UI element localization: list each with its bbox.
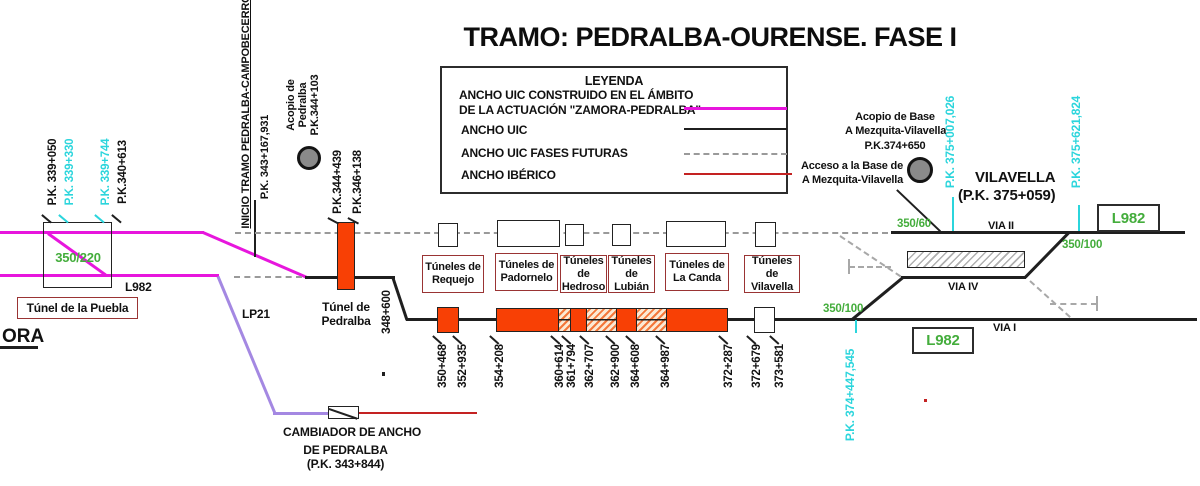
acopio-pedralba-label: Acopio de Pedralba P.K.344+103 — [285, 75, 321, 136]
acopio-base-label-line1: Acopio de Base — [845, 111, 945, 123]
speed-label-350-100-right: 350/100 — [1062, 239, 1102, 251]
pk-label-339-744: P.K. 339+744 — [100, 139, 112, 206]
station-name: VILAVELLA — [975, 169, 1055, 186]
via-iv-label: VIA IV — [948, 281, 978, 293]
future-tunnel-la-canda — [666, 221, 726, 247]
future-siding-buffer-right — [1096, 296, 1098, 311]
pk-tick-364-987: 364+987 — [660, 344, 672, 388]
tunnel-group-requejo: Túneles de Requejo — [422, 255, 484, 293]
acopio-pedralba-marker — [297, 146, 321, 170]
tunnel-bar-padornelo-lacanda — [496, 308, 728, 332]
pk-tick-362-707: 362+707 — [584, 344, 596, 388]
acopio-base-label-line3: P.K.374+650 — [845, 140, 945, 152]
tunnel-group-lubian: Túneles de Lubián — [608, 255, 655, 293]
tunnel-group-label: Vilavella — [751, 281, 793, 294]
speed-label-350-220: 350/220 — [48, 250, 108, 265]
inicio-tramo-label: INICIO TRAMO PEDRALBA-CAMPOBECERROS — [240, 0, 252, 229]
via-ii-label: VIA II — [988, 220, 1014, 232]
future-tunnel-vilavella — [755, 222, 776, 247]
line-code-l982-top-box: L982 — [1097, 204, 1160, 232]
future-tunnel-hedroso — [565, 224, 584, 246]
open-section-hatch — [558, 309, 571, 331]
tunel-pedralba-rect — [337, 222, 355, 290]
pk-label-339-050: P.K. 339+050 — [47, 139, 59, 206]
line-code-l982-left: L982 — [125, 280, 152, 294]
pk-label-344-439: P.K.344+439 — [332, 150, 344, 214]
legend-item-iberico: ANCHO IBÉRICO — [461, 168, 556, 182]
pk-label-339-330: P.K. 339+330 — [64, 139, 76, 206]
iberico-branch-horizontal — [273, 412, 330, 415]
speed-label-350-100-left: 350/100 — [823, 303, 863, 315]
acceso-base-label-line1: Acceso a la Base de — [795, 160, 903, 172]
tunnel-group-label: Hedroso — [562, 281, 605, 294]
pk-label-375-007: P.K. 375+007,026 — [943, 96, 957, 188]
tunnel-group-label: Requejo — [432, 274, 474, 287]
tunnel-group-la-canda: Túneles de La Canda — [665, 253, 729, 291]
legend-sample-red — [684, 173, 792, 175]
future-siding-stub-left — [849, 266, 891, 268]
cambiador-label-line1: CAMBIADOR DE ANCHO — [283, 425, 408, 439]
acopio-pedralba-line3: P.K.344+103 — [309, 75, 321, 136]
pk-tick-352-935: 352+935 — [457, 344, 469, 388]
tunnel-group-label: Padornelo — [501, 272, 553, 285]
pk-tick-361-794: 361+794 — [566, 344, 578, 388]
line-code-l982-top: L982 — [1112, 210, 1145, 227]
tunel-pedralba-label-line2: Pedralba — [320, 314, 372, 328]
legend-box: LEYENDA ANCHO UIC CONSTRUIDO EN EL ÁMBIT… — [440, 66, 788, 194]
zamora-direction-underline — [0, 346, 38, 349]
cambiador-label-line3: (P.K. 343+844) — [283, 457, 408, 471]
ancho-iberico-line — [359, 412, 477, 414]
pk-tick — [111, 214, 121, 223]
tunnel-group-padornelo: Túneles de Padornelo — [495, 253, 558, 291]
future-track-stub-left — [234, 276, 302, 278]
pk-label-340-613: P.K.340+613 — [117, 140, 129, 204]
zamora-direction-label: ORA — [2, 326, 44, 348]
future-siding-buffer-left — [848, 259, 850, 274]
page-title: TRAMO: PEDRALBA-OURENSE. FASE I — [445, 22, 975, 53]
via-i-label: VIA I — [993, 322, 1016, 334]
legend-item-uic-zamora-line2: DE LA ACTUACIÓN "ZAMORA-PEDRALBA" — [459, 103, 701, 117]
pk-tick-364-608: 364+608 — [630, 344, 642, 388]
via-iv-line — [901, 276, 1026, 279]
tunnel-group-label: Túneles de — [561, 255, 606, 281]
legend-item-uic: ANCHO UIC — [461, 123, 527, 137]
tunel-pedralba-label-line1: Túnel de — [320, 300, 372, 314]
railway-diagram: TRAMO: PEDRALBA-OURENSE. FASE I LEYENDA … — [0, 0, 1200, 486]
legend-title: LEYENDA — [442, 74, 786, 88]
future-siding-stub-right — [1050, 303, 1097, 305]
acceso-base-label-line2: A Mezquita-Vilavella — [795, 174, 903, 186]
tunnel-group-vilavella: Túneles de Vilavella — [744, 255, 800, 293]
pk-tick — [718, 335, 728, 344]
acopio-pedralba-line1: Acopio de — [285, 75, 297, 136]
pk-tick-354-208: 354+208 — [494, 344, 506, 388]
tunnel-requejo-rect — [437, 307, 459, 333]
tunnel-vilavella-rect — [754, 307, 775, 333]
pk-tick-362-900: 362+900 — [610, 344, 622, 388]
pk-label-348-600: 348+600 — [381, 290, 393, 334]
future-track-upper — [235, 232, 888, 234]
stray-red-dot — [924, 399, 927, 402]
tunnel-group-label: Túneles de — [745, 255, 799, 281]
open-section-hatch — [586, 309, 617, 331]
iberico-branch-diagonal — [217, 276, 277, 415]
pk-tick-350-468: 350+468 — [437, 344, 449, 388]
pk-tick — [746, 335, 756, 344]
future-tunnel-padornelo — [497, 220, 560, 247]
pk-tick — [328, 217, 339, 224]
pk-tick-372-287: 372+287 — [723, 344, 735, 388]
lp21-label: LP21 — [242, 307, 270, 321]
speed-label-350-60: 350/60 — [897, 218, 931, 230]
pk-label-375-621: P.K. 375+621,824 — [1069, 96, 1083, 188]
tunnel-group-label: Lubián — [614, 281, 649, 294]
tunnel-group-label: La Canda — [673, 272, 721, 285]
legend-sample-magenta — [684, 107, 787, 110]
tunel-la-puebla-label: Túnel de la Puebla — [27, 302, 129, 315]
open-section-hatch — [636, 309, 667, 331]
inicio-tramo-pk: P.K. 343+167,931 — [259, 115, 271, 199]
pk-tick — [605, 335, 615, 344]
pk-label-346-138: P.K.346+138 — [352, 150, 364, 214]
acopio-base-marker — [907, 157, 933, 183]
future-turnout-right — [1029, 280, 1070, 318]
tunnel-group-label: Túneles de — [499, 259, 554, 272]
station-pk: (P.K. 375+059) — [958, 187, 1055, 204]
pk-tick-373-581: 373+581 — [774, 344, 786, 388]
legend-sample-dashed — [684, 153, 787, 155]
stray-dot — [382, 372, 385, 376]
station-platform — [907, 251, 1025, 268]
tunnel-group-label: Túneles de — [669, 259, 724, 272]
line-code-l982-bottom-box: L982 — [912, 327, 974, 354]
pk-cyan-tick-exit — [1078, 205, 1080, 233]
legend-item-uic-future: ANCHO UIC FASES FUTURAS — [461, 146, 628, 160]
tunnel-group-label: Túneles de — [425, 261, 480, 274]
pk-tick — [655, 335, 665, 344]
pk-cyan-tick-entry — [952, 197, 954, 233]
tunel-la-puebla-box: Túnel de la Puebla — [17, 297, 138, 319]
pk-label-374-447: P.K. 374+447,545 — [843, 349, 857, 441]
inicio-tramo-leader-line — [254, 200, 256, 257]
acopio-pedralba-line2: Pedralba — [297, 75, 309, 136]
gauge-changer-symbol — [328, 406, 359, 419]
legend-item-uic-zamora-line1: ANCHO UIC CONSTRUIDO EN EL ÁMBITO — [459, 88, 693, 102]
pk-cyan-tick-south — [855, 320, 857, 333]
uic-track-bend-348 — [392, 277, 409, 320]
tunnel-group-hedroso: Túneles de Hedroso — [560, 255, 607, 293]
pk-tick — [579, 335, 589, 344]
future-tunnel-requejo — [438, 223, 458, 247]
tunnel-group-label: Túneles de — [609, 255, 654, 281]
gauge-changer-slash — [329, 408, 358, 419]
cambiador-label-line2: DE PEDRALBA — [283, 443, 408, 457]
line-code-l982-bottom: L982 — [926, 332, 959, 349]
future-tunnel-lubian — [612, 224, 631, 246]
legend-sample-black — [684, 128, 787, 130]
acopio-base-label-line2: A Mezquita-Vilavella — [845, 125, 945, 137]
pk-tick-372-679: 372+679 — [751, 344, 763, 388]
pk-tick-360-614: 360+614 — [554, 344, 566, 388]
